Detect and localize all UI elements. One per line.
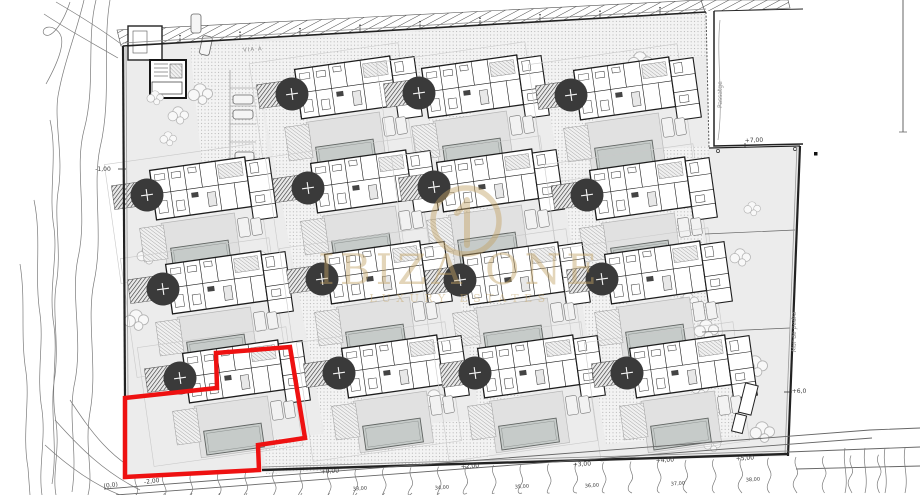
elevation-label: +3,00: [572, 460, 591, 468]
site-plan-drawing: VIA A Passatge Mur de pedra -1,00+7,00+6…: [0, 0, 920, 495]
contour-number: 35,00: [515, 484, 530, 491]
passage-label: Passatge: [717, 81, 724, 108]
site-plan-svg: VIA A Passatge Mur de pedra -1,00+7,00+6…: [0, 0, 920, 495]
contour-number: 37,00: [671, 481, 686, 488]
watermark-brand: IBIZA ONE: [318, 245, 602, 294]
contour-number: 36,00: [585, 483, 600, 490]
watermark-tagline: LUXURY ESTATES: [369, 292, 550, 305]
elevation-label: +5,00: [735, 454, 754, 462]
elevation-label: -1,00: [95, 166, 111, 173]
stone-wall-label: Mur de pedra: [791, 311, 798, 352]
contour-number: 34,00: [435, 485, 450, 492]
elevation-label: +0,00: [320, 467, 339, 475]
elevation-label: +2,00: [460, 462, 479, 470]
elevation-label: +7,00: [745, 137, 764, 145]
elevation-label: +4,00: [655, 456, 674, 464]
elevation-label: +6,0: [792, 388, 807, 395]
contour-number: 38,00: [746, 477, 761, 484]
contour-number: 33,00: [353, 486, 368, 493]
